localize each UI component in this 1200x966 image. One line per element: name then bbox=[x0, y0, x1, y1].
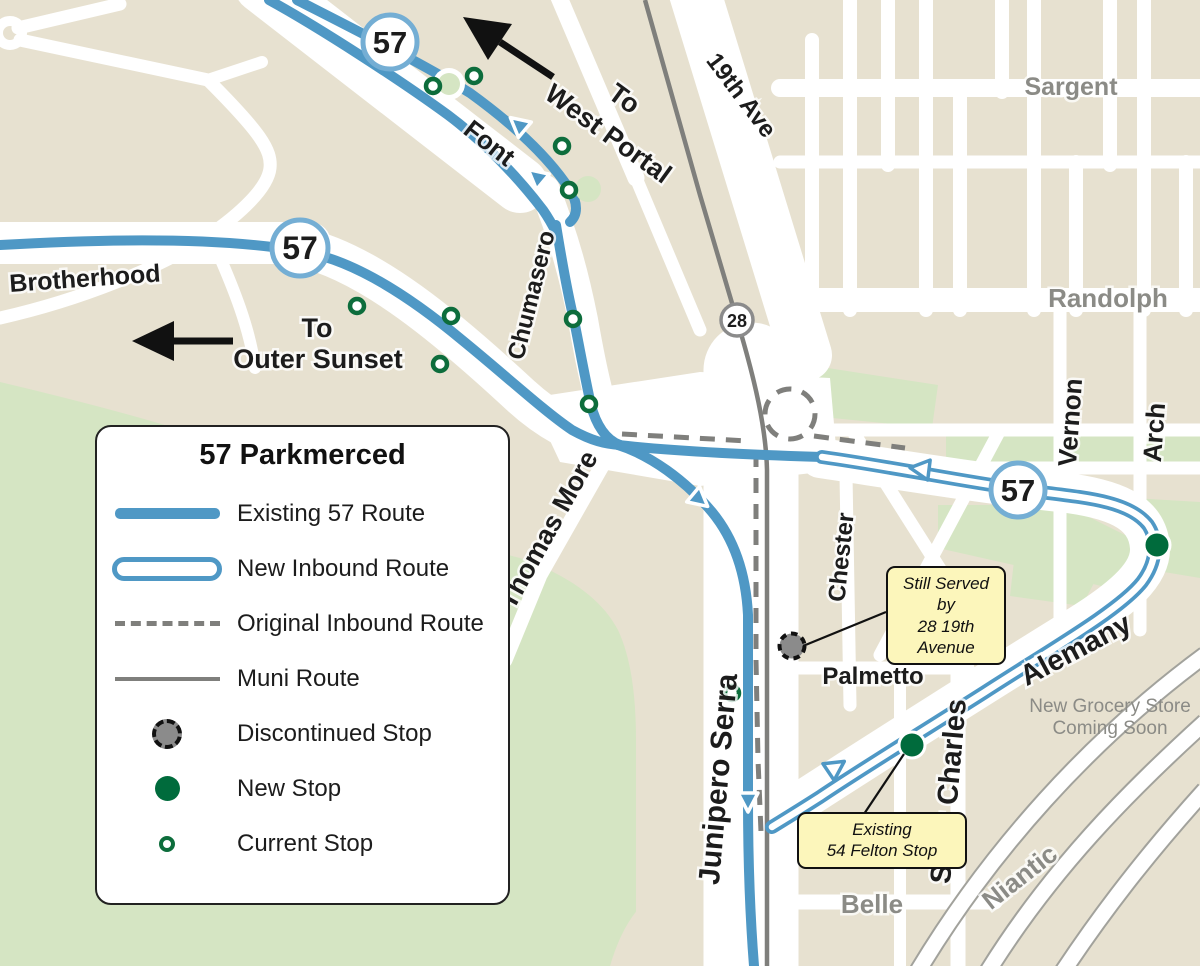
badge-57-left: 57 bbox=[272, 220, 328, 276]
legend-label: Discontinued Stop bbox=[237, 720, 432, 748]
legend-item-new-stop: New Stop bbox=[97, 761, 508, 816]
callout-line: Avenue bbox=[896, 637, 996, 658]
current-stop-marker bbox=[467, 69, 481, 83]
discontinued-stop-icon bbox=[152, 719, 182, 749]
badge-28: 28 bbox=[721, 304, 753, 336]
current-stop-marker bbox=[426, 79, 440, 93]
legend-label: New Inbound Route bbox=[237, 555, 449, 583]
current-stop-marker bbox=[350, 299, 364, 313]
new-stop-icon bbox=[155, 776, 180, 801]
legend-label: Current Stop bbox=[237, 830, 373, 858]
callout-still-served: Still Served by 28 19th Avenue bbox=[886, 566, 1006, 665]
transit-map: 57 57 57 28 Brotherhood Font Chumasero T… bbox=[0, 0, 1200, 966]
current-stop-marker bbox=[582, 397, 596, 411]
callout-line: Still Served by bbox=[896, 573, 996, 616]
current-stop-icon bbox=[159, 836, 175, 852]
callout-line: 54 Felton Stop bbox=[807, 840, 957, 861]
street-label-sargent: Sargent bbox=[1024, 73, 1118, 101]
grocery-note-line2: Coming Soon bbox=[1052, 718, 1167, 739]
callout-line: 28 19th bbox=[896, 616, 996, 637]
current-stop-marker bbox=[566, 312, 580, 326]
existing-route-swatch bbox=[115, 508, 220, 519]
muni-route-swatch bbox=[115, 677, 220, 681]
legend: 57 Parkmerced Existing 57 Route New Inbo… bbox=[95, 425, 510, 905]
street-label-vernon: Vernon bbox=[1052, 377, 1088, 467]
current-stop-marker bbox=[555, 139, 569, 153]
legend-item-existing-route: Existing 57 Route bbox=[97, 486, 508, 541]
original-inbound-route-swatch bbox=[115, 621, 220, 626]
current-stop-marker bbox=[433, 357, 447, 371]
to-outer-sunset-line2: Outer Sunset bbox=[233, 344, 403, 374]
new-inbound-route-swatch bbox=[112, 557, 222, 581]
legend-item-muni-route: Muni Route bbox=[97, 651, 508, 706]
to-outer-sunset-line1: To bbox=[302, 313, 333, 343]
legend-title: 57 Parkmerced bbox=[97, 439, 508, 472]
street-label-belle: Belle bbox=[841, 889, 903, 919]
badge-57-right-label: 57 bbox=[1001, 473, 1035, 508]
badge-57-top: 57 bbox=[363, 15, 417, 69]
badge-57-left-label: 57 bbox=[282, 230, 318, 266]
discontinued-stop-marker bbox=[780, 634, 805, 659]
street-label-randolph: Randolph bbox=[1048, 283, 1168, 313]
legend-item-original-inbound-route: Original Inbound Route bbox=[97, 596, 508, 651]
legend-item-new-inbound-route: New Inbound Route bbox=[97, 541, 508, 596]
street-label-arch: Arch bbox=[1137, 402, 1171, 463]
legend-label: Original Inbound Route bbox=[237, 610, 484, 638]
grocery-note-line1: New Grocery Store bbox=[1029, 696, 1191, 717]
legend-item-discontinued-stop: Discontinued Stop bbox=[97, 706, 508, 761]
legend-label: Existing 57 Route bbox=[237, 500, 425, 528]
callout-line: Existing bbox=[807, 819, 957, 840]
current-stop-marker bbox=[444, 309, 458, 323]
badge-28-label: 28 bbox=[727, 311, 747, 331]
new-stop-marker bbox=[1144, 532, 1170, 558]
badge-57-top-label: 57 bbox=[373, 25, 407, 60]
badge-57-right: 57 bbox=[991, 463, 1045, 517]
legend-label: New Stop bbox=[237, 775, 341, 803]
current-stop-marker bbox=[562, 183, 576, 197]
street-label-palmetto: Palmetto bbox=[822, 663, 923, 690]
legend-label: Muni Route bbox=[237, 665, 360, 693]
legend-item-current-stop: Current Stop bbox=[97, 816, 508, 871]
callout-existing-54-felton-stop: Existing 54 Felton Stop bbox=[797, 812, 967, 869]
